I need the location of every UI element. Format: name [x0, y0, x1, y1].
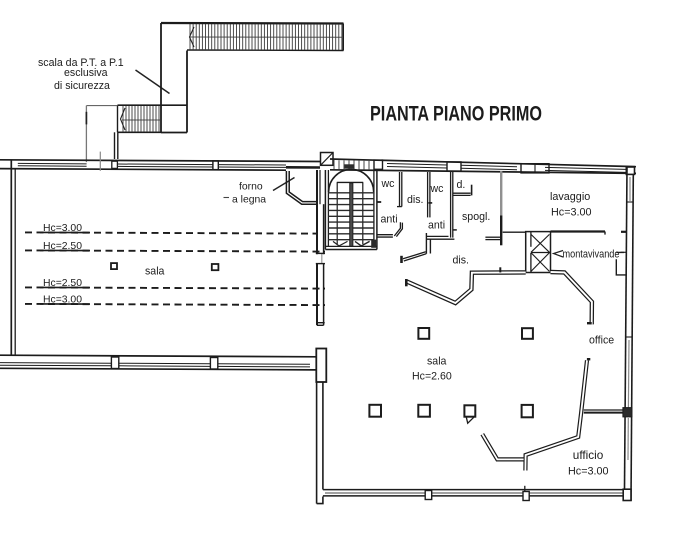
svg-text:sala: sala: [145, 266, 165, 278]
svg-text:a legna: a legna: [232, 195, 266, 206]
svg-text:office: office: [589, 335, 614, 347]
svg-text:Hc=2.60: Hc=2.60: [412, 371, 452, 383]
svg-text:spogl.: spogl.: [462, 211, 490, 223]
svg-text:dis.: dis.: [453, 255, 470, 267]
svg-text:wc: wc: [430, 183, 445, 195]
svg-text:lavaggio: lavaggio: [550, 191, 590, 203]
svg-text:wc: wc: [381, 178, 396, 190]
svg-text:sala: sala: [427, 356, 447, 368]
svg-text:PIANTA PIANO PRIMO: PIANTA PIANO PRIMO: [370, 102, 542, 126]
svg-text:ufficio: ufficio: [573, 449, 604, 462]
svg-text:Hc=3.00: Hc=3.00: [568, 466, 609, 478]
svg-text:dis.: dis.: [407, 194, 424, 206]
svg-text:d.: d.: [457, 179, 466, 191]
svg-text:anti: anti: [381, 214, 398, 226]
svg-text:di sicurezza: di sicurezza: [54, 80, 110, 92]
svg-text:forno: forno: [239, 182, 263, 193]
svg-text:Hc=3.00: Hc=3.00: [551, 207, 592, 219]
svg-text:anti: anti: [428, 220, 445, 232]
svg-text:montavivande: montavivande: [563, 249, 620, 261]
svg-text:esclusiva: esclusiva: [64, 67, 108, 79]
